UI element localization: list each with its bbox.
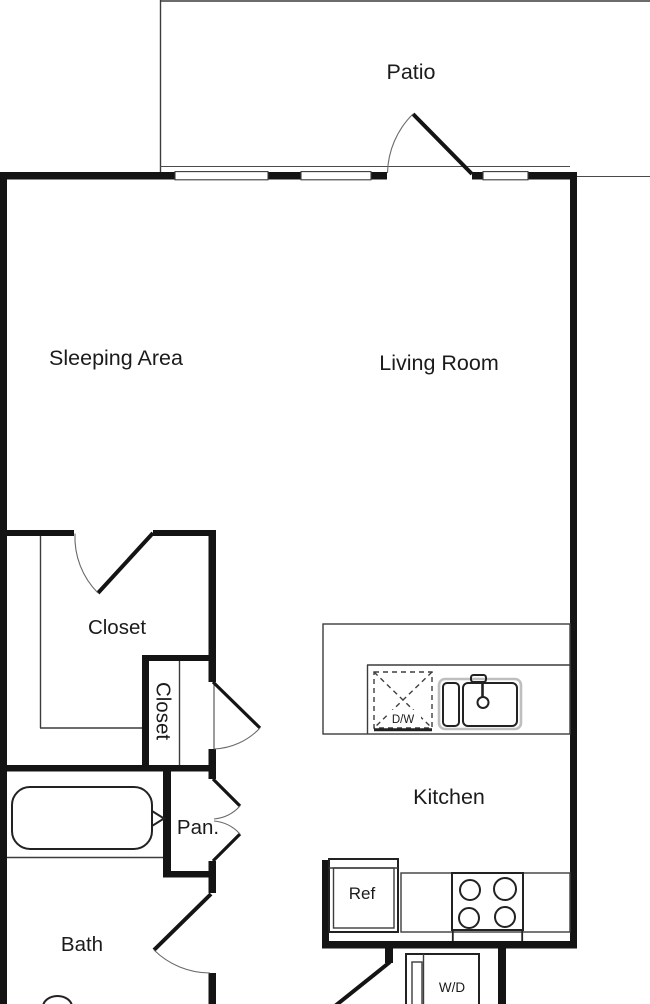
window-2 [301,172,371,180]
dishwasher-label: D/W [392,714,415,726]
plan-background [0,0,650,1004]
label-sleeping-area: Sleeping Area [49,346,183,370]
label-living-room: Living Room [379,351,499,375]
label-closet-main: Closet [88,616,146,639]
label-closet-small: Closet [152,682,175,740]
floor-plan: D/W Ref W/D [0,0,650,1004]
washer-dryer-label: W/D [439,980,465,995]
label-patio: Patio [386,60,435,84]
window-1 [175,172,268,180]
window-3 [483,172,528,180]
label-bath: Bath [61,933,103,956]
refrigerator-label: Ref [349,884,376,903]
label-pantry: Pan. [177,816,219,839]
label-kitchen: Kitchen [413,785,485,809]
